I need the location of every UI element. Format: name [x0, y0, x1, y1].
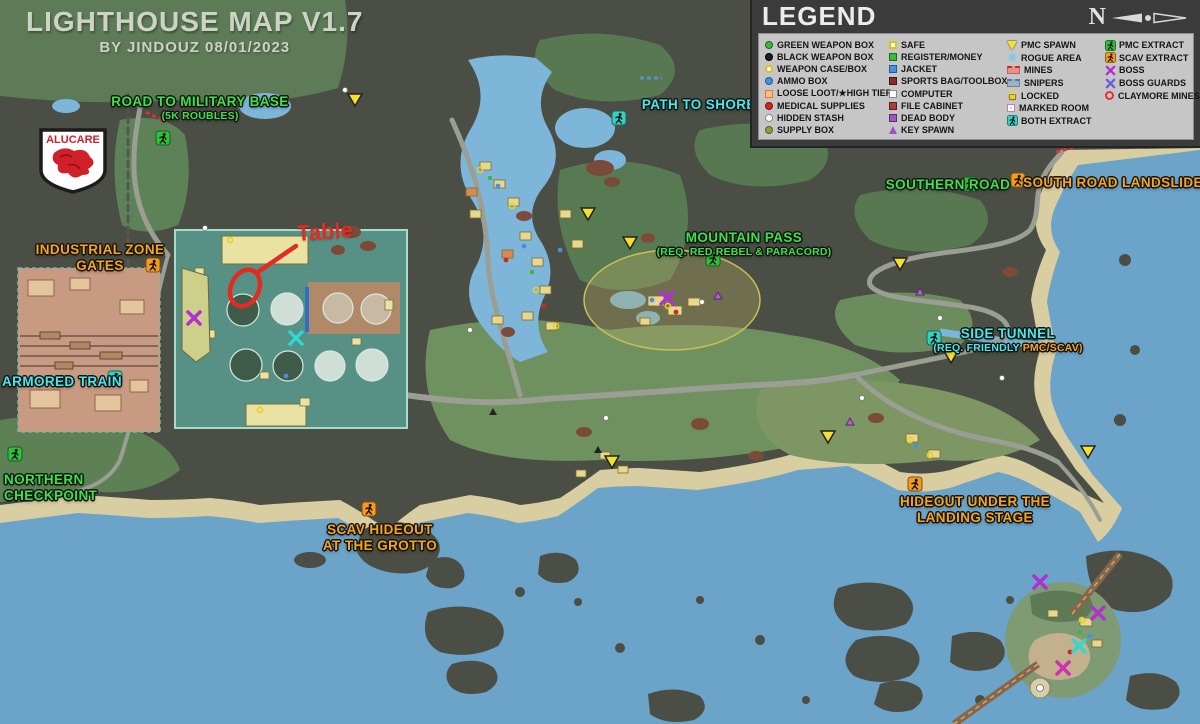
claymore-mines-icon — [1105, 91, 1114, 100]
supply-box-icon — [765, 126, 773, 134]
legend-item: COMPUTER — [889, 88, 1005, 100]
key-spawn-icon — [889, 126, 897, 134]
both-extract-icon — [1007, 115, 1018, 126]
medical-supplies-icon — [765, 102, 773, 110]
industrial-zone — [18, 268, 160, 432]
legend-panel: LEGEND N GREEN WEAPON BOX BLACK WEAPON B… — [750, 0, 1200, 148]
rogue-area-icon — [1007, 52, 1018, 63]
legend-item: BLACK WEAPON BOX — [765, 51, 887, 63]
label-south-road-landslide: SOUTH ROAD LANDSLIDE — [1023, 175, 1200, 191]
legend-item: GREEN WEAPON BOX — [765, 39, 887, 51]
legend-item: SPORTS BAG/TOOLBOX — [889, 75, 1005, 87]
compass-north-label: N — [1089, 4, 1106, 31]
alucare-logo: ALUCARE — [38, 127, 108, 195]
label-mountain-pass-req: (REQ. RED REBEL & PARACORD) — [657, 246, 832, 258]
legend-item: FILE CABINET — [889, 100, 1005, 112]
annotation-table-text: Table — [296, 217, 354, 247]
legend-item: BOSS GUARDS — [1105, 77, 1191, 90]
map-title-main: LIGHTHOUSE MAP V1.7 — [26, 6, 363, 38]
sports-bag-toolbox-icon — [889, 77, 897, 85]
boss-icon — [1105, 65, 1116, 76]
label-southern-road: SOUTHERN ROAD — [886, 177, 1010, 193]
ammo-box-icon — [765, 77, 773, 85]
legend-column-3: PMC SPAWN ROGUE AREA MINES SNIPERS LOCKE… — [1007, 39, 1103, 136]
label-military-base-cost: (5K ROUBLES) — [111, 110, 288, 122]
legend-item: MARKED ROOM — [1007, 102, 1103, 115]
register-money-icon — [889, 53, 897, 61]
legend-item: SUPPLY BOX — [765, 124, 887, 136]
mines-icon — [1007, 66, 1020, 74]
loose-loot-icon — [765, 90, 773, 98]
legend-item: ROGUE AREA — [1007, 52, 1103, 65]
hidden-stash-icon — [765, 114, 773, 122]
label-side-tunnel: SIDE TUNNEL (REQ. FRIENDLY PMC/SCAV) — [933, 326, 1082, 354]
legend-item: LOOSE LOOT/★HIGH TIER — [765, 88, 887, 100]
legend-item: SAFE — [889, 39, 1005, 51]
file-cabinet-icon — [889, 102, 897, 110]
legend-body: GREEN WEAPON BOX BLACK WEAPON BOX WEAPON… — [758, 33, 1194, 140]
legend-item: WEAPON CASE/BOX — [765, 63, 887, 75]
legend-item: REGISTER/MONEY — [889, 51, 1005, 63]
legend-item: LOCKED — [1007, 89, 1103, 102]
legend-item: DEAD BODY — [889, 112, 1005, 124]
legend-item: JACKET — [889, 63, 1005, 75]
jacket-icon — [889, 65, 897, 73]
water-treatment-plant — [175, 230, 407, 428]
label-industrial-zone-gates: INDUSTRIAL ZONE GATES — [36, 242, 165, 273]
pmc-extract-icon — [1105, 40, 1116, 51]
legend-item: BOTH EXTRACT — [1007, 115, 1103, 128]
legend-item: SCAV EXTRACT — [1105, 52, 1191, 65]
legend-item: KEY SPAWN — [889, 124, 1005, 136]
legend-item: PMC SPAWN — [1007, 39, 1103, 52]
legend-column-2: SAFE REGISTER/MONEY JACKET SPORTS BAG/TO… — [889, 39, 1005, 136]
weapon-case-icon — [765, 65, 773, 73]
legend-item: HIDDEN STASH — [765, 112, 887, 124]
legend-item: MEDICAL SUPPLIES — [765, 100, 887, 112]
map-title: LIGHTHOUSE MAP V1.7 BY JINDOUZ 08/01/202… — [26, 6, 363, 56]
green-weapon-box-icon — [765, 41, 773, 49]
boss-guards-icon — [1105, 78, 1116, 89]
legend-item: MINES — [1007, 64, 1103, 77]
logo-text: ALUCARE — [46, 134, 100, 146]
legend-item: AMMO BOX — [765, 75, 887, 87]
black-weapon-box-icon — [765, 53, 773, 61]
computer-icon — [889, 90, 897, 98]
lighthouse-map-screenshot: LIGHTHOUSE MAP V1.7 BY JINDOUZ 08/01/202… — [0, 0, 1200, 724]
label-armored-train: ARMORED TRAIN — [2, 374, 122, 390]
legend-item: SNIPERS — [1007, 77, 1103, 90]
label-scav-hideout-grotto: SCAV HIDEOUT AT THE GROTTO — [323, 522, 437, 553]
label-hideout-landing-stage: HIDEOUT UNDER THE LANDING STAGE — [900, 494, 1050, 525]
label-road-to-military-base: ROAD TO MILITARY BASE (5K ROUBLES) — [111, 94, 288, 122]
label-side-tunnel-req: (REQ. FRIENDLY PMC/SCAV) — [933, 342, 1082, 354]
legend-item: PMC EXTRACT — [1105, 39, 1191, 52]
pmc-spawn-icon — [1007, 41, 1017, 50]
dead-body-icon — [889, 114, 897, 122]
locked-icon — [1007, 90, 1018, 101]
chalet-area-highlight — [584, 250, 760, 350]
label-northern-checkpoint: NORTHERN CHECKPOINT — [4, 472, 97, 503]
safe-icon — [889, 41, 897, 49]
legend-column-4: PMC EXTRACT SCAV EXTRACT BOSS BOSS GUARD… — [1105, 39, 1191, 136]
snipers-icon — [1007, 79, 1020, 87]
compass-needle-icon — [1112, 11, 1186, 25]
legend-column-1: GREEN WEAPON BOX BLACK WEAPON BOX WEAPON… — [765, 39, 887, 136]
legend-title: LEGEND — [762, 1, 876, 32]
compass: N — [1089, 4, 1186, 31]
map-title-byline: BY JINDOUZ 08/01/2023 — [26, 39, 363, 56]
legend-item: BOSS — [1105, 64, 1191, 77]
label-mountain-pass: MOUNTAIN PASS (REQ. RED REBEL & PARACORD… — [657, 230, 832, 258]
scav-extract-icon — [1105, 52, 1116, 63]
legend-item: CLAYMORE MINES — [1105, 89, 1191, 102]
marked-room-icon — [1007, 104, 1015, 112]
